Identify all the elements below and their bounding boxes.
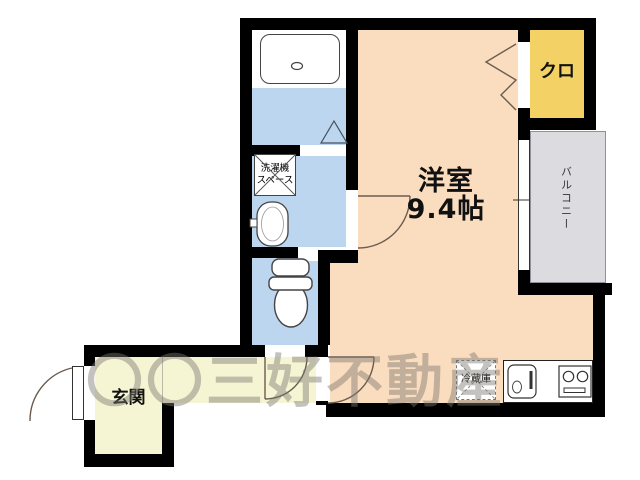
washroom-door-opening	[346, 190, 358, 250]
entrance-door-arc-icon	[30, 368, 72, 421]
wall-closet-left-upper	[518, 18, 530, 42]
wall-balcony-bottom	[518, 283, 612, 295]
wall-entrance-bottom	[84, 454, 174, 467]
washer-space-label: 洗濯機 スペース	[257, 163, 294, 187]
wall-waterblock-left	[240, 18, 252, 345]
bathtub	[260, 34, 340, 84]
wall-washroom-toilet-divider	[240, 247, 298, 258]
wall-window-lower-stub	[518, 270, 530, 283]
wall-waterblock-right	[346, 18, 358, 190]
toilet-floor	[252, 258, 318, 345]
bathroom-floor	[252, 88, 346, 145]
agency-watermark: 〇〇三好不動産	[86, 336, 506, 418]
wall-window-upper-stub	[518, 130, 530, 140]
floor-plan: 洗濯機 スペース 冷蔵庫	[0, 0, 640, 480]
washroom-toilet-opening	[298, 247, 318, 261]
kitchen-counter	[503, 360, 593, 403]
balcony-label: バルコニー	[560, 166, 572, 261]
bath-door-opening	[300, 145, 346, 156]
wall-toilet-right	[318, 250, 330, 345]
living-room-floor	[358, 30, 518, 295]
washing-machine-space: 洗濯機 スペース	[254, 154, 296, 196]
wall-top	[240, 18, 596, 30]
entrance-door	[72, 366, 84, 420]
living-room-label: 洋室 9.4帖	[385, 168, 507, 225]
closet-label: クロ	[528, 63, 586, 82]
living-room-name: 洋室	[385, 168, 507, 196]
living-room-size: 9.4帖	[385, 196, 507, 224]
wall-closet-left-lower	[518, 108, 530, 122]
wall-right	[593, 295, 605, 417]
